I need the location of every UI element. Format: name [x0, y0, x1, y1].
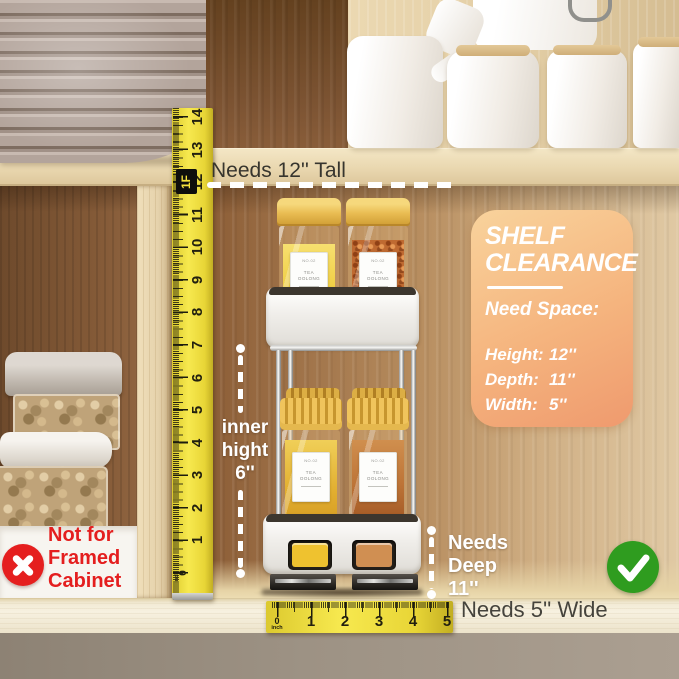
- basket-window: [352, 540, 396, 570]
- cross-icon: [2, 544, 44, 586]
- ruler-number: 13: [186, 139, 208, 161]
- white-canister: [547, 50, 627, 148]
- ruler-number: 2: [186, 497, 208, 519]
- ruler-number: 3: [368, 613, 390, 630]
- ruler-unit-label: inch: [266, 625, 288, 631]
- ruler-end-clip: [172, 593, 213, 600]
- wall-below-cabinet: [0, 633, 679, 679]
- spice-jar-cap: [277, 198, 341, 226]
- card-divider: [487, 286, 563, 289]
- ruler-number: 4: [402, 613, 424, 630]
- horizontal-ruler: 0inch12345: [266, 601, 453, 633]
- ruler-number: 14: [186, 106, 208, 128]
- ruler-number: 9: [186, 269, 208, 291]
- vertical-ruler: 14131211109876543210inch 1F: [172, 108, 213, 600]
- white-canister: [633, 42, 679, 148]
- needs-tall-label: Needs 12'' Tall: [211, 159, 346, 183]
- needs-deep-label: Needs Deep 11'': [448, 532, 508, 601]
- card-title: SHELF: [485, 223, 625, 250]
- spice-jar-label: NO.02 TEA OOLONG: [292, 452, 330, 502]
- depth-dashed-line: [429, 537, 434, 589]
- card-subtitle: Need Space:: [485, 299, 625, 321]
- storage-jar-lid: [5, 352, 122, 396]
- inner-height-dashed-line: [238, 355, 243, 413]
- needs-wide-label: Needs 5'' Wide: [461, 597, 608, 623]
- spec-row: Depth:11'': [485, 367, 625, 392]
- cabinet-top-dark-wall: [198, 0, 348, 152]
- ruler-number: 6: [186, 367, 208, 389]
- teapot-wood-lid: [456, 45, 530, 56]
- not-for-framed-cabinet-label: Not for Framed Cabinet: [48, 524, 121, 593]
- ruler-number: 7: [186, 334, 208, 356]
- spice-jar-cap: [346, 198, 410, 226]
- ruler-number: 10: [186, 236, 208, 258]
- rack-top-basket: [266, 287, 419, 348]
- inner-height-dashed-line: [238, 490, 243, 568]
- ruler-number: 11: [186, 204, 208, 226]
- spice-jar-cap: [280, 398, 342, 430]
- shelf-clearance-card: SHELF CLEARANCE Need Space: Height:12'' …: [471, 210, 633, 427]
- canister-wood-lid: [553, 45, 621, 55]
- ruler-number: 5: [436, 613, 458, 630]
- ruler-number: 1: [186, 529, 208, 551]
- check-icon: [607, 541, 659, 593]
- basket-window: [288, 540, 332, 570]
- ruler-number: 8: [186, 301, 208, 323]
- measure-dot: [427, 590, 436, 599]
- spec-row: Height:12'': [485, 342, 625, 367]
- card-title: CLEARANCE: [485, 250, 625, 277]
- measure-dot: [427, 526, 436, 535]
- spice-jar-cap: [347, 398, 409, 430]
- cabinet-divider-panel: [137, 186, 172, 598]
- ruler-number: 1: [300, 613, 322, 630]
- ruler-number: 2: [334, 613, 356, 630]
- spec-row: Width:5'': [485, 392, 625, 417]
- pull-out-slide-rails: [266, 572, 420, 592]
- storage-jar-lid: [0, 432, 112, 468]
- ruler-unit-label: inch: [174, 569, 180, 585]
- measure-dot: [236, 569, 245, 578]
- canister-wood-lid: [638, 37, 679, 47]
- product-image: NO.02 TEA OOLONG NO.02 TEA OOLONG NO.02 …: [0, 0, 679, 679]
- jar-handle: [568, 0, 612, 22]
- one-foot-marker: 1F: [176, 169, 197, 194]
- rack-bottom-basket: [263, 514, 421, 574]
- rack-rod: [411, 350, 416, 520]
- measure-dot: [236, 344, 245, 353]
- ruler-numbers: 0inch12345: [266, 601, 453, 633]
- inner-height-label: inner hight 6'': [203, 416, 287, 485]
- white-canister: [347, 36, 443, 148]
- spice-jar-label: NO.02 TEA OOLONG: [359, 452, 397, 502]
- white-teapot: [447, 50, 539, 148]
